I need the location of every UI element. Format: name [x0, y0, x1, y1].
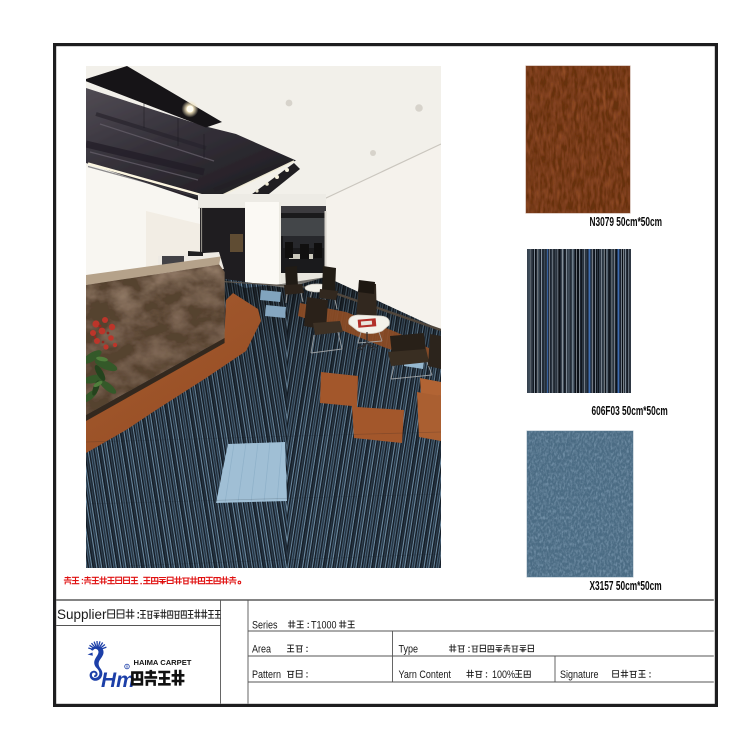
svg-text:100%: 100%	[492, 669, 515, 681]
svg-text:Type: Type	[399, 644, 419, 656]
svg-text:Signature: Signature	[560, 669, 599, 681]
svg-text:N3079 50cm*50cm: N3079 50cm*50cm	[590, 215, 663, 229]
svg-text:606F03 50cm*50cm: 606F03 50cm*50cm	[592, 404, 669, 418]
svg-text:Yarn Content: Yarn Content	[399, 669, 452, 681]
svg-text:Area: Area	[252, 644, 271, 656]
svg-text:T1000: T1000	[311, 620, 337, 632]
svg-text:Supplier: Supplier	[57, 607, 107, 622]
svg-text:X3157 50cm*50cm: X3157 50cm*50cm	[590, 579, 662, 593]
svg-text:HAIMA CARPET: HAIMA CARPET	[134, 658, 192, 667]
svg-text:Pattern: Pattern	[252, 669, 281, 681]
svg-text:Hm: Hm	[101, 669, 135, 692]
svg-text:Series: Series	[252, 620, 278, 632]
